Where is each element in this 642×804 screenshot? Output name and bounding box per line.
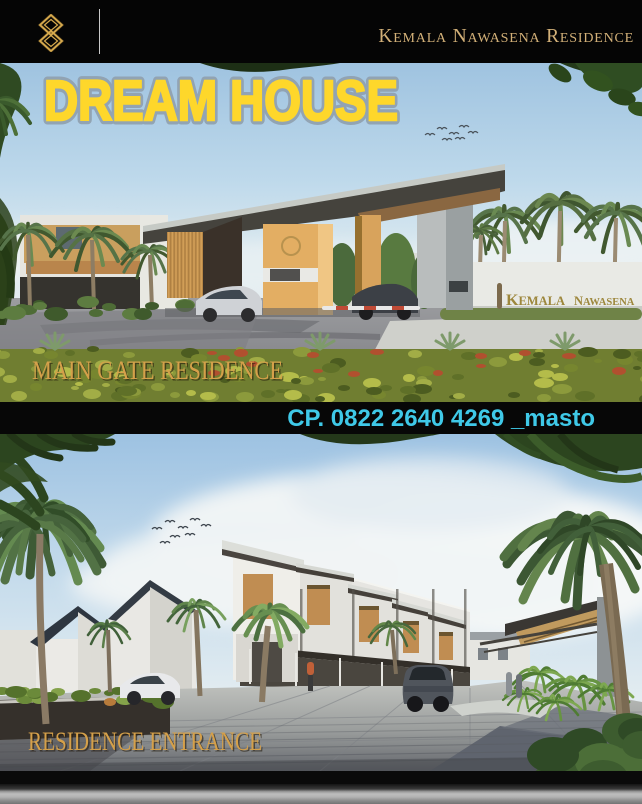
svg-text:RESIDENCE ENTRANCE: RESIDENCE ENTRANCE: [28, 727, 262, 756]
svg-text:DREAM HOUSE: DREAM HOUSE: [44, 69, 398, 133]
svg-text:MAIN GATE RESIDENCE: MAIN GATE RESIDENCE: [32, 356, 283, 385]
